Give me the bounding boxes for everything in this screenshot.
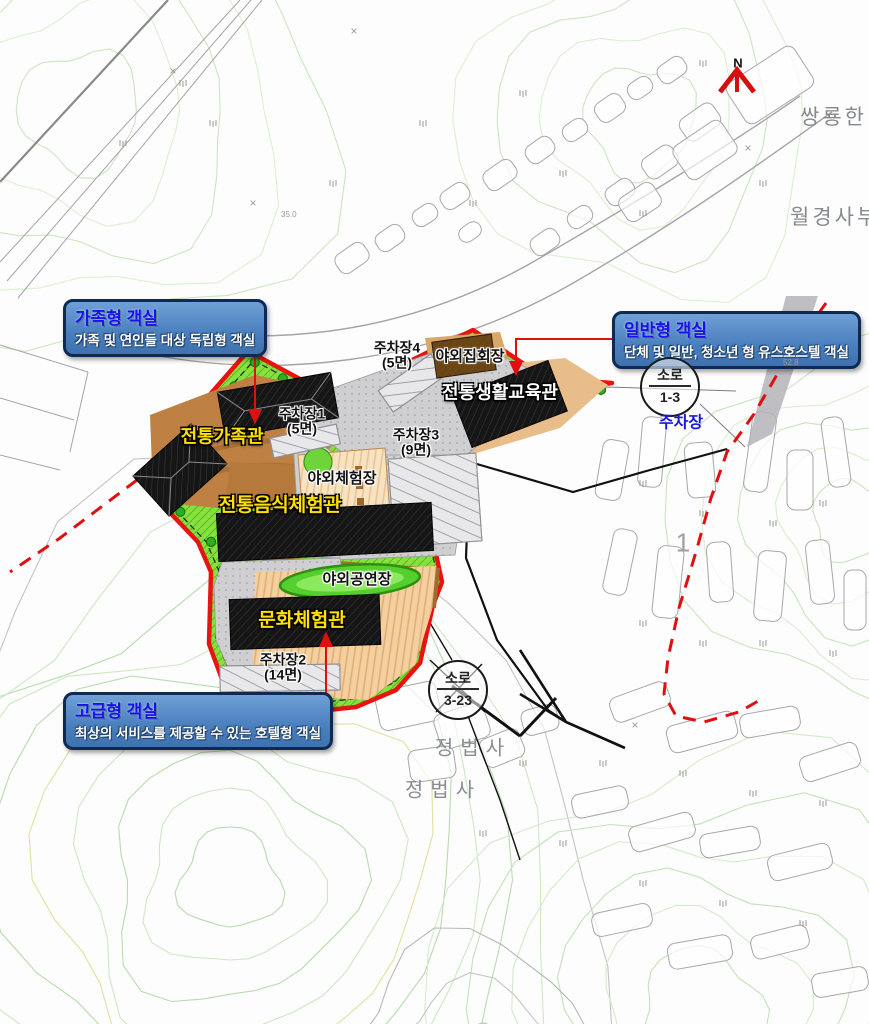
- road-badge-1-3: 소로 1-3: [640, 357, 700, 417]
- parking-capacity: (5면): [382, 354, 412, 370]
- road-badge-3-23: 소로 3-23: [428, 660, 488, 720]
- callout-desc: 단체 및 일반, 청소년 형 유스호스텔 객실: [624, 341, 849, 361]
- badge-road-type: 소로: [649, 359, 691, 387]
- callout-desc: 가족 및 연인들 대상 독립형 객실: [75, 329, 255, 349]
- survey-x-mark: ×: [169, 64, 176, 78]
- callout-desc: 최상의 서비스를 제공할 수 있는 호텔형 객실: [75, 722, 321, 742]
- label-parking-3: 주차장3 (9면): [393, 427, 439, 456]
- label-food-hall: 전통음식체험관: [219, 496, 341, 516]
- parking-name: 주차장3: [393, 426, 439, 442]
- badge-road-number: 1-3: [642, 387, 698, 405]
- elevation-mark: 52.8: [783, 358, 799, 367]
- label-temple-2: 정법사: [405, 781, 481, 802]
- label-education-hall: 전통생활교육관: [442, 384, 558, 403]
- elevation-mark: 35.0: [281, 210, 297, 219]
- label-temple-1: 정법사: [435, 739, 511, 760]
- site-plan-map: 가족형 객실 가족 및 연인들 대상 독립형 객실 일반형 객실 단체 및 일반…: [0, 0, 869, 1024]
- parking-name: 주차장4: [374, 339, 420, 355]
- label-family-hall: 전통가족관: [181, 428, 264, 447]
- survey-x-mark: ×: [744, 141, 751, 155]
- badge-road-type: 소로: [437, 662, 479, 690]
- label-assembly-area: 야외집회장: [435, 349, 504, 365]
- label-parking-area-blue: 주차장: [659, 416, 703, 433]
- survey-x-mark: ×: [631, 718, 638, 732]
- label-parking-2: 주차장2 (14면): [260, 652, 306, 681]
- callout-title: 일반형 객실: [624, 316, 849, 341]
- map-drawing: [0, 0, 869, 1024]
- label-ssangyong: 쌍룡한: [800, 101, 867, 131]
- callout-family-room: 가족형 객실 가족 및 연인들 대상 독립형 객실: [63, 299, 267, 357]
- label-parcel-number: 1: [676, 529, 690, 556]
- north-label: N: [733, 56, 742, 71]
- label-parking-1: 주차장1 (5면): [279, 406, 325, 435]
- badge-road-number: 3-23: [430, 690, 486, 708]
- label-stage-area: 야외공연장: [322, 572, 391, 588]
- parking-name: 주차장2: [260, 651, 306, 667]
- parking-capacity: (5면): [287, 420, 317, 436]
- callout-title: 가족형 객실: [75, 304, 255, 329]
- parking-capacity: (14면): [264, 666, 302, 682]
- label-experience-area: 야외체험장: [307, 471, 376, 487]
- parking-capacity: (9면): [401, 441, 431, 457]
- survey-x-mark: ×: [350, 24, 357, 38]
- callout-title: 고급형 객실: [75, 697, 321, 722]
- label-wolgyeongsa: 월경사부: [790, 201, 869, 231]
- survey-x-mark: ×: [249, 196, 256, 210]
- parking-name: 주차장1: [279, 405, 325, 421]
- label-culture-hall: 문화체험관: [258, 611, 345, 631]
- callout-premium-room: 고급형 객실 최상의 서비스를 제공할 수 있는 호텔형 객실: [63, 692, 333, 750]
- label-parking-4: 주차장4 (5면): [374, 340, 420, 369]
